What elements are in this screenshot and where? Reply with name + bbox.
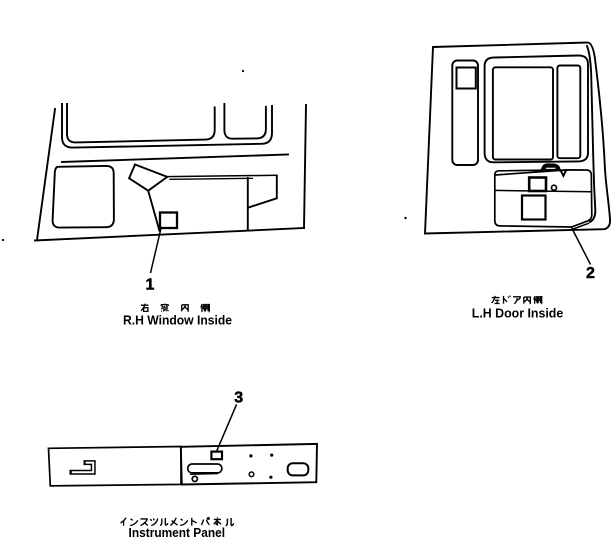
svg-text:1: 1 <box>146 277 155 294</box>
svg-text:3: 3 <box>234 390 243 407</box>
svg-text:Instrument Panel: Instrument Panel <box>129 525 226 540</box>
svg-text:R.H Window Inside: R.H Window Inside <box>123 312 232 327</box>
svg-text:L.H Door Inside: L.H Door Inside <box>472 305 564 320</box>
svg-text:2: 2 <box>586 265 595 282</box>
